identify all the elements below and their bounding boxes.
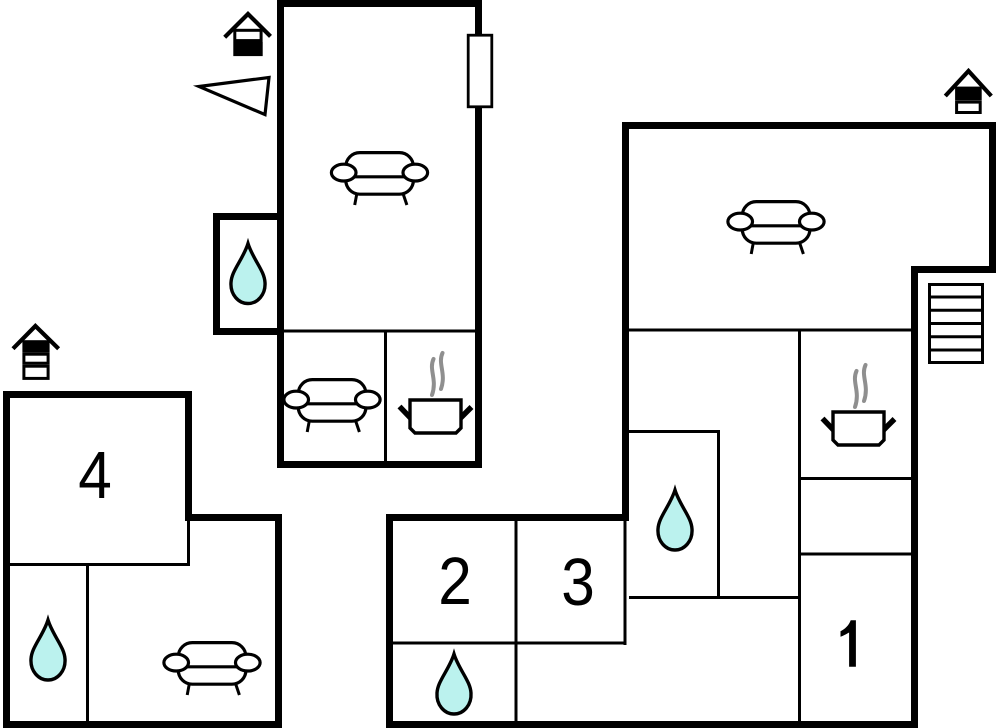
svg-text:2: 2 [438, 543, 472, 619]
svg-text:3: 3 [561, 544, 595, 620]
svg-text:4: 4 [78, 437, 112, 513]
